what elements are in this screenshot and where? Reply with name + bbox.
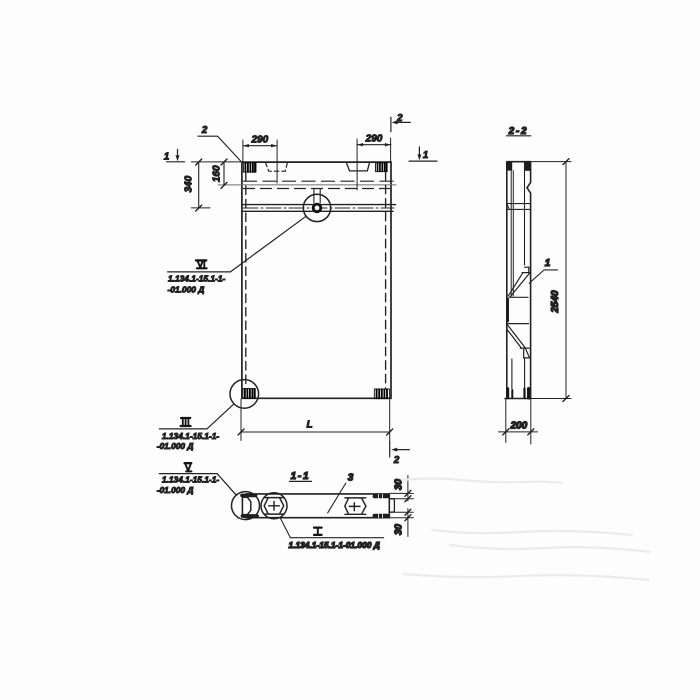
svg-text:1.134.1-15.1-1-01.000 Д: 1.134.1-15.1-1-01.000 Д xyxy=(289,540,380,550)
svg-text:1: 1 xyxy=(164,151,170,162)
svg-text:-01.000 Д: -01.000 Д xyxy=(157,485,194,495)
svg-text:200: 200 xyxy=(509,421,527,432)
svg-text:30: 30 xyxy=(394,524,405,536)
svg-text:2540: 2540 xyxy=(550,290,561,314)
svg-text:2: 2 xyxy=(201,125,208,136)
svg-text:3: 3 xyxy=(348,473,354,484)
svg-text:1.134.1-15.1-1-: 1.134.1-15.1-1- xyxy=(168,273,225,283)
svg-text:290: 290 xyxy=(365,133,383,144)
svg-text:1-1: 1-1 xyxy=(291,471,311,482)
svg-text:L: L xyxy=(306,420,312,431)
svg-text:290: 290 xyxy=(250,134,268,145)
svg-text:1: 1 xyxy=(545,258,551,269)
svg-text:1.134.1-15.1-1-: 1.134.1-15.1-1- xyxy=(162,431,219,441)
svg-text:2: 2 xyxy=(396,113,403,124)
svg-text:1.134.1-15.1-1-: 1.134.1-15.1-1- xyxy=(162,475,219,485)
svg-text:1: 1 xyxy=(423,150,429,161)
svg-text:2-2: 2-2 xyxy=(508,126,529,137)
svg-text:2: 2 xyxy=(393,455,400,466)
svg-text:160: 160 xyxy=(212,165,223,182)
svg-text:-01.000 Д: -01.000 Д xyxy=(157,441,194,451)
svg-text:340: 340 xyxy=(184,175,195,192)
svg-text:-01.000 Д: -01.000 Д xyxy=(168,284,205,294)
